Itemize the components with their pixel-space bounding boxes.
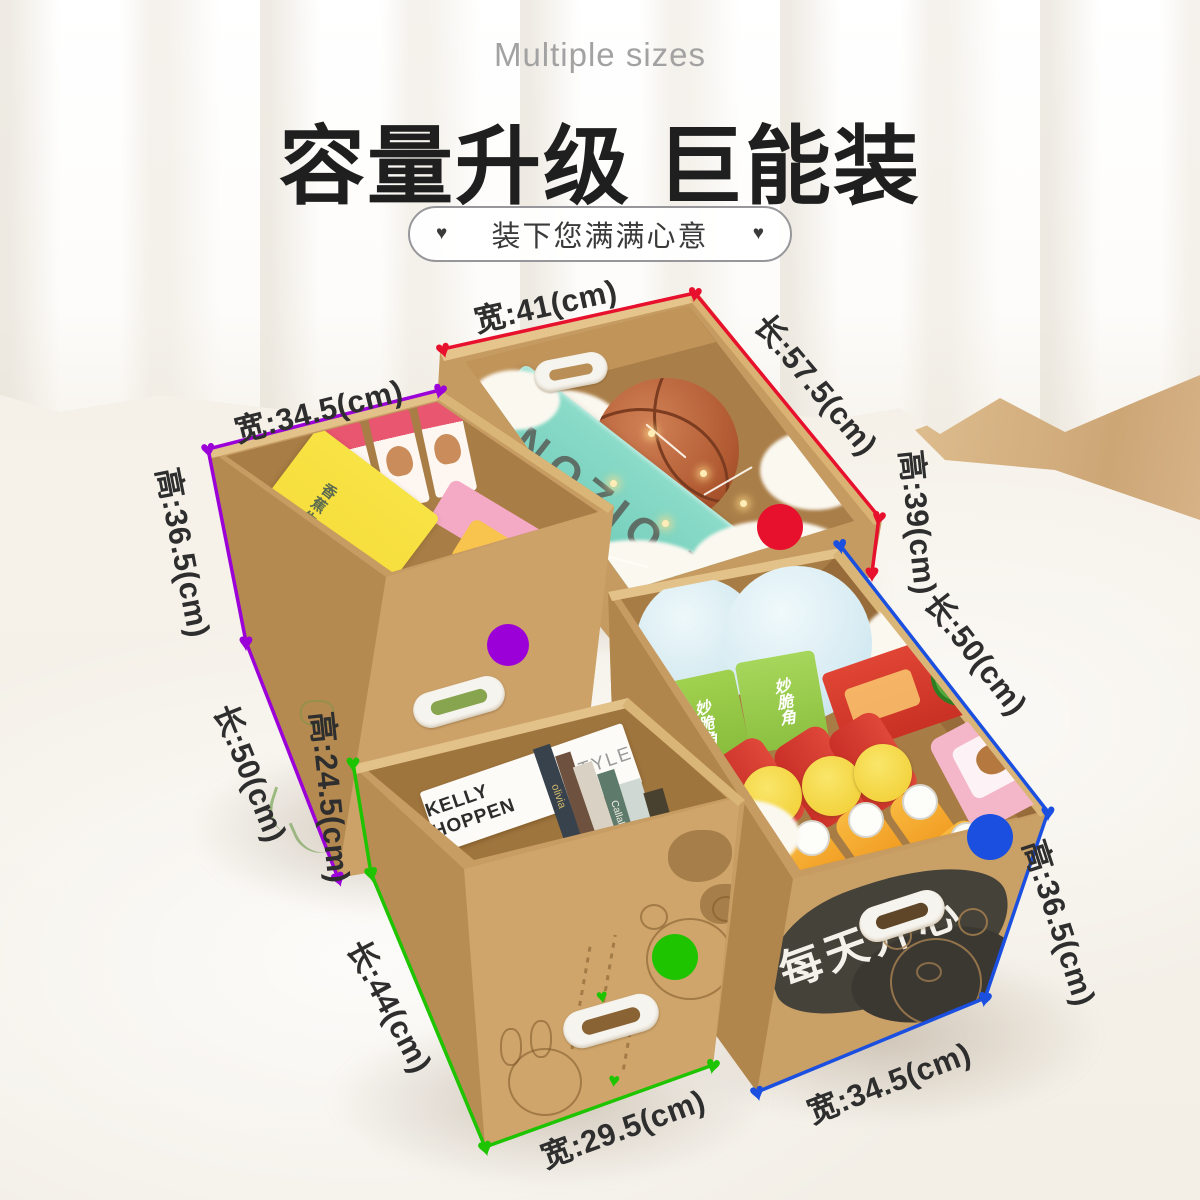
bear-ear-doodle [640, 904, 668, 930]
rabbit-ear-doodle [500, 1028, 522, 1066]
string-light [662, 520, 669, 527]
bottle-cap [902, 784, 938, 820]
string-light [740, 500, 747, 507]
crisp-cone-label: 妙脆角 [766, 676, 798, 727]
doodle [668, 830, 732, 882]
string-light [700, 470, 707, 477]
tagline-badge: ♥ 装下您满满心意 ♥ [408, 206, 792, 262]
string-light [610, 480, 617, 487]
rabbit-ear-doodle [530, 1020, 552, 1058]
bear-muzzle-doodle [916, 962, 942, 982]
heart-icon: ♥ [436, 223, 447, 245]
product-photo-scene: POIZON [0, 0, 1200, 1200]
bottle-cap [848, 802, 884, 838]
bear-ear-doodle [958, 908, 988, 936]
page-title: 容量升级 巨能装 [0, 96, 1200, 221]
subtitle-en: Multiple sizes [0, 36, 1200, 74]
tagline-text: 装下您满满心意 [491, 213, 708, 255]
string-light [648, 430, 655, 437]
heart-icon: ♥ [753, 223, 764, 245]
